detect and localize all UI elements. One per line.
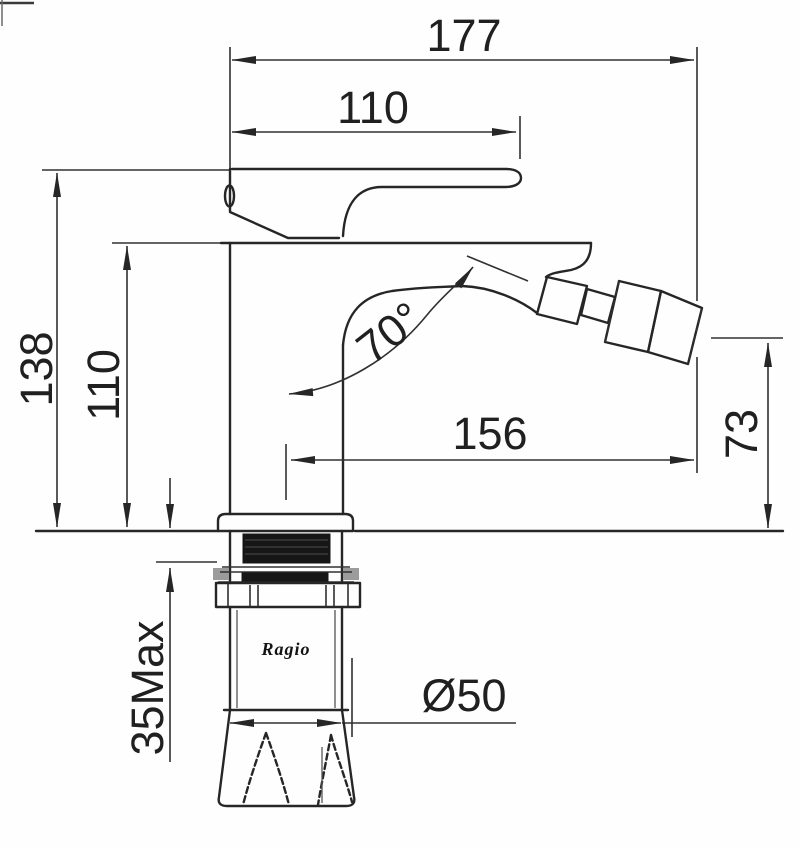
mounting-hardware — [213, 531, 360, 806]
bidet-mixer-technical-drawing: 177 110 138 110 70° 156 73 35Max Ø50 Rag… — [0, 0, 799, 847]
dim-base-diameter: Ø50 — [421, 670, 506, 721]
technical-drawing-canvas: 177 110 138 110 70° 156 73 35Max Ø50 Rag… — [0, 0, 799, 847]
dim-outlet-height: 73 — [716, 409, 767, 459]
spray-head-nozzle — [648, 291, 702, 364]
base-flange — [218, 514, 353, 531]
supply-hose-left — [243, 733, 289, 805]
spray-axis-reference-line — [467, 256, 528, 281]
dim-overall-length: 177 — [426, 10, 501, 61]
dim-handle-length: 110 — [337, 82, 409, 133]
dim-max-mounting-thickness: 35Max — [122, 620, 173, 756]
dim-body-height: 110 — [78, 349, 129, 421]
scan-edge-artifacts — [0, 0, 34, 26]
locking-ring — [242, 573, 328, 581]
threaded-shank — [243, 534, 330, 563]
dim-total-height: 138 — [11, 331, 62, 406]
handle-base — [230, 169, 339, 238]
spout-nose — [546, 243, 591, 277]
brand-logo: Ragio — [260, 639, 310, 659]
locknut — [216, 583, 360, 607]
spray-head — [537, 277, 702, 364]
spray-head-adapter — [537, 277, 587, 324]
spray-head-ring — [605, 281, 661, 352]
dimension-labels: 177 110 138 110 70° 156 73 35Max Ø50 — [11, 10, 767, 756]
handle-lever — [232, 169, 521, 236]
dim-spray-angle: 70° — [347, 292, 432, 374]
faucet-body-outline — [36, 169, 783, 531]
dim-spout-reach: 156 — [452, 408, 527, 459]
